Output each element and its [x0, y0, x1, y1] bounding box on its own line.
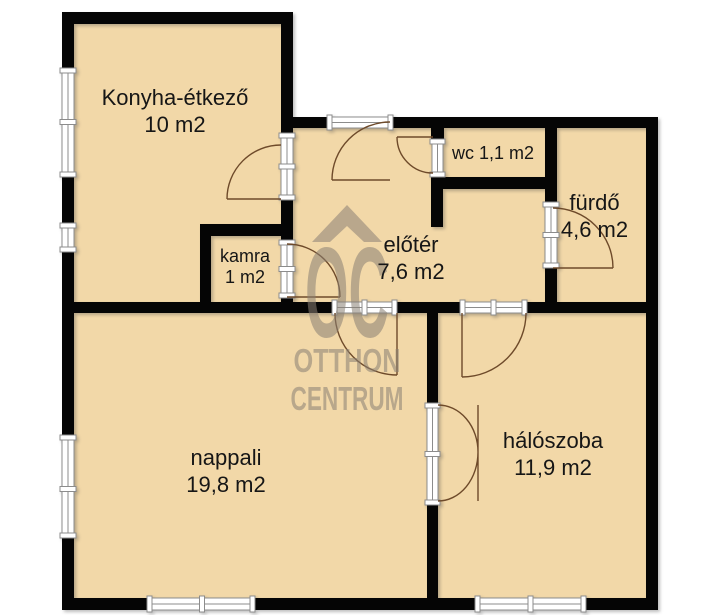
room-label-nappali: nappali 19,8 m2: [126, 444, 326, 498]
room-area: 1 m2: [195, 267, 295, 288]
room-area: 11,9 m2: [453, 454, 653, 481]
room-area: 7,6 m2: [331, 258, 491, 285]
watermark-line2: CENTRUM: [291, 380, 404, 417]
room-name: nappali: [126, 444, 326, 471]
room-label-kamra: kamra 1 m2: [195, 246, 295, 288]
room-name: fürdő: [547, 189, 642, 216]
window-nappali-left: [60, 435, 76, 538]
window-kitchen-left-large: [60, 68, 76, 177]
door-frame-haloszoba: [460, 300, 527, 315]
room-area: 10 m2: [75, 111, 275, 138]
room-label-furdo: fürdő 4,6 m2: [547, 189, 642, 243]
room-area: 1,1 m2: [479, 143, 534, 163]
room-name: Konyha-étkező: [75, 84, 275, 111]
room-name: előtér: [331, 231, 491, 258]
room-label-haloszoba: hálószoba 11,9 m2: [453, 427, 653, 481]
double-door-frame-nappali-haloszoba: [425, 403, 440, 505]
door-frame-kitchen: [279, 133, 295, 200]
room-label-konyha: Konyha-étkező 10 m2: [75, 84, 275, 138]
floor-plan: OC OTTHON CENTRUM Konyha-étkező 10 m2 ka…: [0, 0, 716, 615]
window-nappali-bottom: [147, 596, 255, 612]
window-haloszoba-bottom: [475, 596, 586, 612]
room-area: 19,8 m2: [126, 471, 326, 498]
room-label-wc: wc 1,1 m2: [443, 143, 543, 164]
room-name: wc: [452, 143, 474, 163]
room-name: hálószoba: [453, 427, 653, 454]
window-kitchen-left-small: [60, 223, 76, 252]
room-area: 4,6 m2: [547, 216, 642, 243]
room-name: kamra: [195, 246, 295, 267]
room-label-eloter: előtér 7,6 m2: [331, 231, 491, 285]
watermark-line1: OTTHON: [294, 342, 401, 379]
